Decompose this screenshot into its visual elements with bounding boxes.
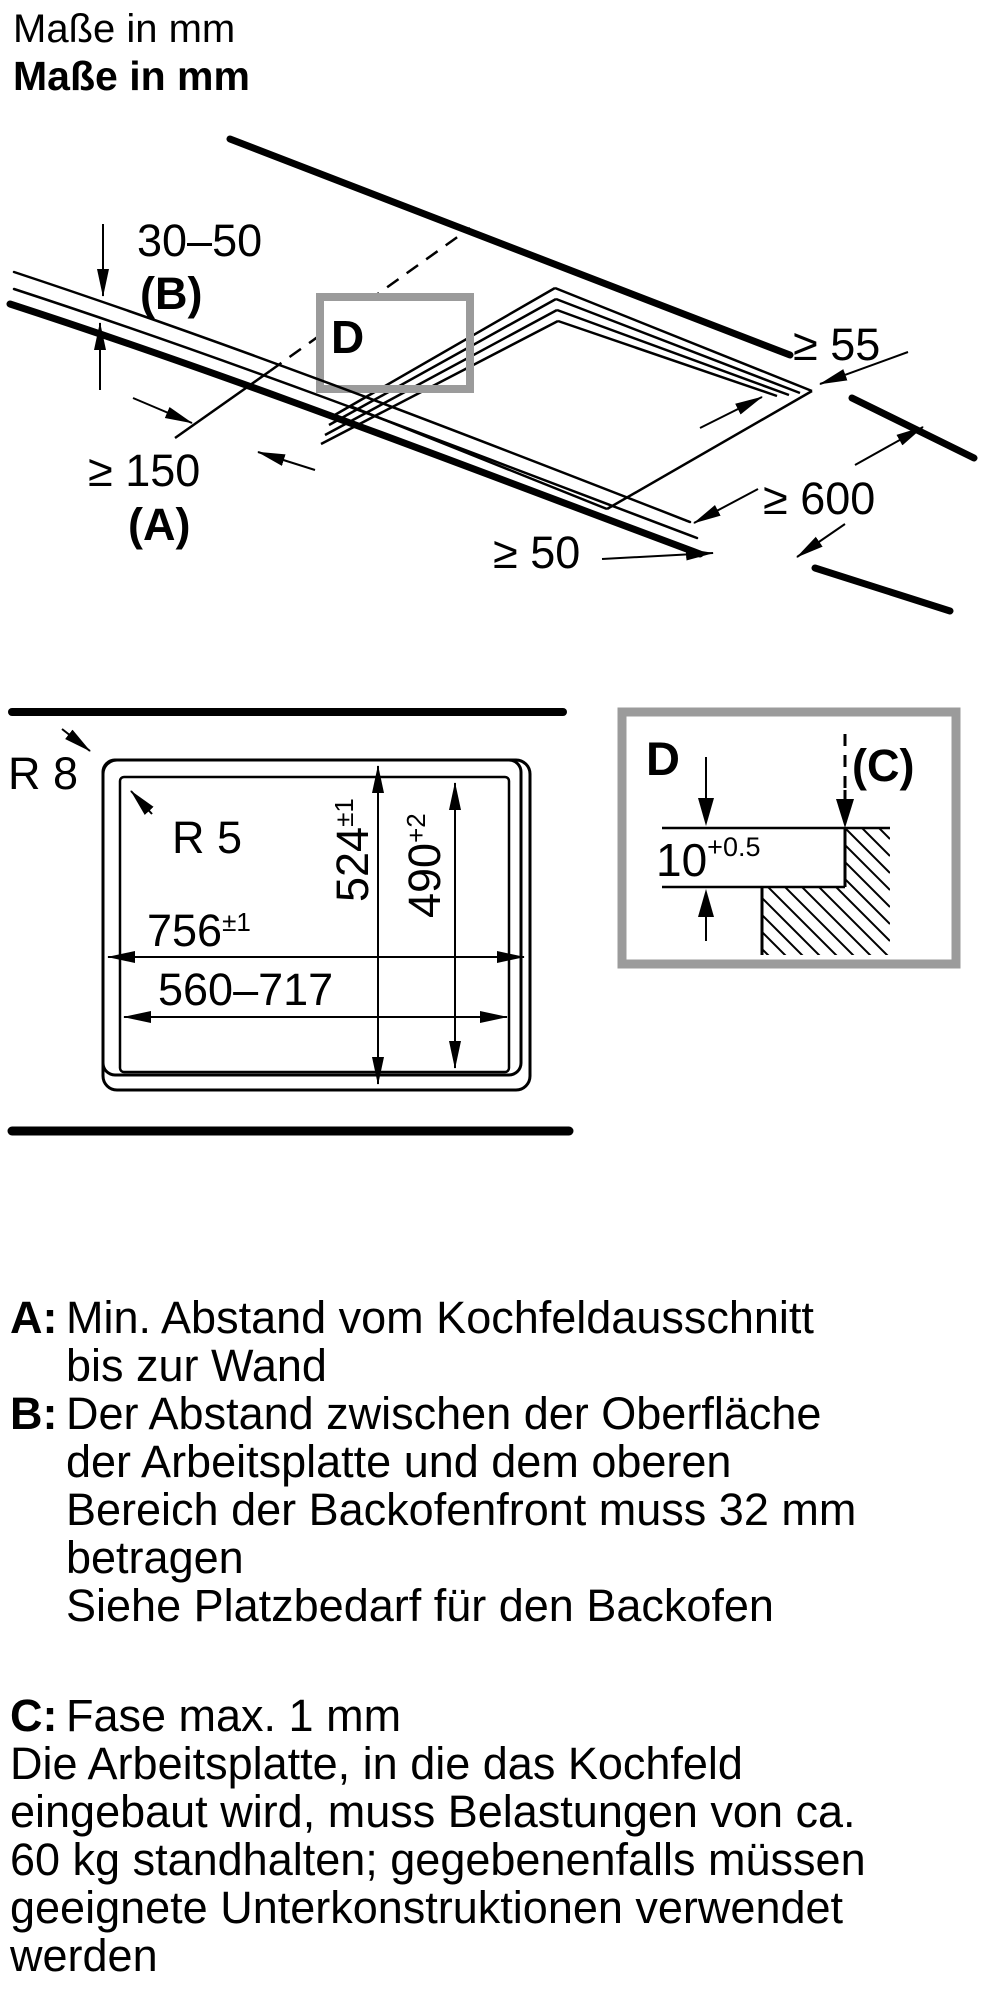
radius-inner-label: R 5 — [172, 812, 242, 863]
note-b-line: Der Abstand zwischen der Oberfläche — [66, 1390, 994, 1438]
note-b-key: B: — [10, 1390, 66, 1630]
note-load-line: werden — [10, 1932, 994, 1980]
page-title: Maße in mm Maße in mm — [13, 6, 250, 100]
dim-a-label: ≥ 150 — [88, 445, 200, 496]
note-b-line: Bereich der Backofenfront muss 32 mm — [66, 1486, 994, 1534]
dim-a-key-label: (A) — [128, 499, 190, 550]
detail-d-marker-label: D — [331, 311, 364, 363]
note-load-line: Die Arbeitsplatte, in die das Kochfeld — [10, 1740, 994, 1788]
radius-outer-label: R 8 — [8, 748, 78, 799]
detail-marker-label: D — [646, 732, 680, 785]
note-b-line: Siehe Platzbedarf für den Backofen — [66, 1582, 994, 1630]
cutout-dimensions-diagram: R 8 R 5 756±1 560–717 524±1 490+2 D (C) — [0, 700, 1000, 1170]
note-load-line: 60 kg standhalten; gegebenenfalls müssen — [10, 1836, 994, 1884]
installation-clearance-diagram: D 30–50 (B) ≥ 150 (A) ≥ 55 ≥ 600 — [0, 128, 1000, 638]
appliance-depth-label: 524±1 — [327, 798, 378, 902]
installation-notes: A: Min. Abstand vom Kochfeldausschnitt b… — [10, 1294, 994, 1980]
note-a-key: A: — [10, 1294, 66, 1390]
note-b-line: betragen — [66, 1534, 994, 1582]
note-c: C: Fase max. 1 mm — [10, 1692, 994, 1740]
cutout-depth-label: 490+2 — [399, 813, 450, 918]
note-b-line: der Arbeitsplatte und dem oberen — [66, 1438, 994, 1486]
note-a-line: bis zur Wand — [66, 1342, 994, 1390]
note-a: A: Min. Abstand vom Kochfeldausschnitt b… — [10, 1294, 994, 1390]
dim-b-label: 30–50 — [137, 215, 262, 266]
title-bold: Maße in mm — [13, 52, 250, 100]
dim-b-key-label: (B) — [140, 268, 202, 319]
dim-side-label: ≥ 55 — [793, 319, 880, 370]
note-load-line: eingebaut wird, muss Belastungen von ca. — [10, 1788, 994, 1836]
appliance-width-label: 756±1 — [147, 905, 251, 956]
chamfer-key-label: (C) — [852, 740, 914, 791]
note-c-key: C: — [10, 1692, 66, 1740]
dim-b-arrows — [100, 224, 103, 390]
note-load: Die Arbeitsplatte, in die das Kochfeld e… — [10, 1740, 994, 1980]
title-regular: Maße in mm — [13, 6, 250, 52]
cutout-width-label: 560–717 — [158, 964, 333, 1015]
note-load-line: geeignete Unterkonstruktionen verwendet — [10, 1884, 994, 1932]
dim-front-label: ≥ 50 — [493, 527, 580, 578]
note-b: B: Der Abstand zwischen der Oberfläche d… — [10, 1390, 994, 1630]
note-a-line: Min. Abstand vom Kochfeldausschnitt — [66, 1294, 994, 1342]
dim-depth-label: ≥ 600 — [763, 473, 875, 524]
detail-d-box: D (C) — [622, 711, 956, 1077]
section-rules — [12, 712, 569, 1131]
note-c-line: Fase max. 1 mm — [66, 1692, 994, 1740]
